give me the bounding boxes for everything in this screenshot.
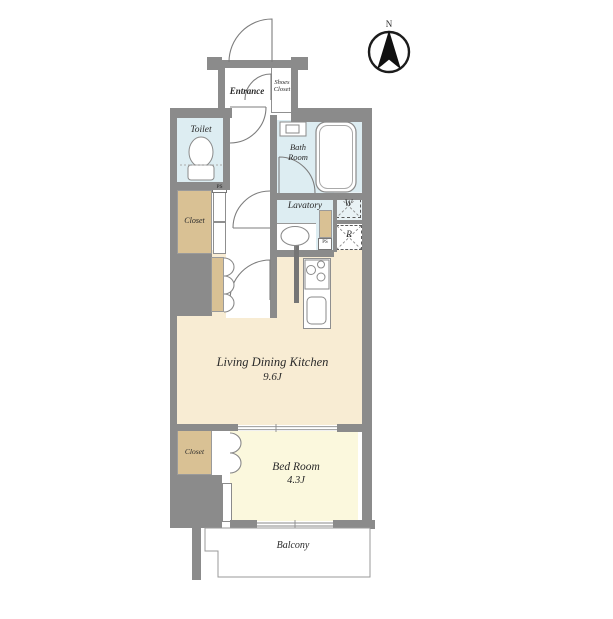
wall-appliance-mid	[334, 220, 362, 224]
shoes-closet	[271, 66, 293, 113]
wall-toilet-bottom	[170, 182, 225, 190]
wall-lavatory-bottom	[270, 250, 334, 257]
wall-bath-top	[293, 108, 372, 122]
toilet-room	[177, 115, 225, 183]
bath-room	[277, 120, 362, 193]
balcony-label: Balcony	[218, 540, 368, 552]
kitchen-counter	[303, 258, 331, 329]
wall-entrance-top	[218, 60, 294, 68]
bedroom-floor	[230, 430, 358, 522]
wall-bed-bottom-right	[333, 520, 375, 529]
bedroom-west-window	[222, 483, 232, 522]
wall-east	[362, 108, 372, 528]
hall-slim-closet	[211, 257, 224, 312]
wall-notch	[177, 254, 212, 316]
wall-balcony-stub	[192, 525, 201, 580]
wall-kitchen-divider	[294, 243, 299, 303]
hallway-floor	[226, 108, 270, 318]
closet-upper-door-leaf-top	[213, 191, 226, 222]
lavatory-side-cabinet	[319, 210, 332, 238]
refrigerator-space	[336, 225, 362, 250]
wall-partition-left	[177, 424, 238, 431]
closet-upper-door-leaf-bottom	[213, 222, 226, 254]
wall-bed-bottom-left	[230, 520, 257, 528]
wall-bath-bottom	[270, 193, 372, 200]
north-compass-icon	[369, 32, 409, 72]
pipe-space-lower	[318, 238, 332, 250]
entry-door-arc	[229, 19, 272, 62]
wall-partition-right	[337, 424, 362, 432]
wall-hall-right	[270, 115, 277, 318]
wall-west	[170, 108, 177, 478]
balcony-outline	[205, 528, 370, 577]
closet-upper	[177, 190, 212, 254]
wall-toilet-right	[223, 115, 230, 190]
closet-lower	[177, 430, 212, 475]
floor-plan: Entrance ShoesCloset Toilet BathRoom Lav…	[0, 0, 613, 619]
wall-southwest-block	[170, 475, 222, 528]
compass-north-label: N	[381, 19, 397, 29]
